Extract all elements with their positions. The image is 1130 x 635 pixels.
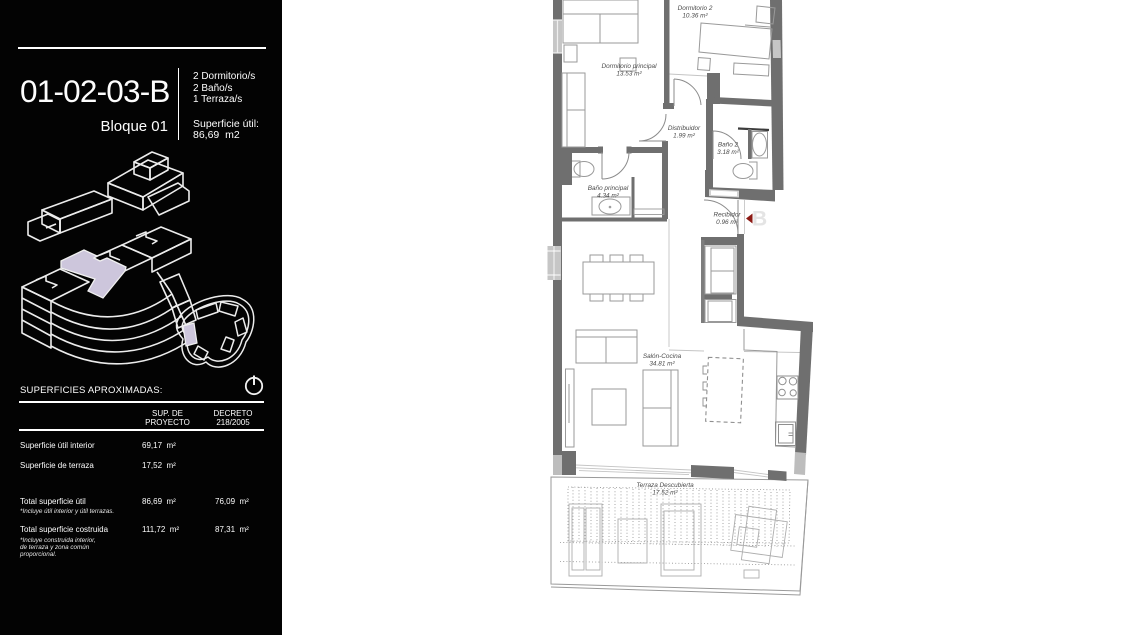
svg-text:Distribuidor: Distribuidor — [668, 125, 701, 132]
svg-text:34.81 m²: 34.81 m² — [649, 361, 675, 368]
svg-text:Salón-Cocina: Salón-Cocina — [643, 353, 682, 360]
svg-text:4.34 m²: 4.34 m² — [597, 193, 620, 200]
svg-text:13.53 m²: 13.53 m² — [616, 71, 642, 78]
svg-text:Baño 2: Baño 2 — [718, 142, 739, 149]
svg-text:17.52 m²: 17.52 m² — [652, 490, 678, 497]
svg-text:B: B — [752, 208, 767, 231]
svg-text:Baño principal: Baño principal — [588, 185, 629, 192]
svg-text:Dormitorio principal: Dormitorio principal — [601, 63, 657, 70]
svg-text:Dormitorio 2: Dormitorio 2 — [678, 5, 713, 12]
svg-text:3.18 m²: 3.18 m² — [717, 149, 740, 156]
svg-text:Terraza Descubierta: Terraza Descubierta — [636, 482, 694, 489]
svg-text:1.99 m²: 1.99 m² — [673, 133, 696, 140]
svg-text:10.36 m²: 10.36 m² — [682, 13, 708, 20]
svg-text:Recibidor: Recibidor — [714, 212, 742, 219]
svg-text:0.96 m²: 0.96 m² — [716, 219, 739, 226]
